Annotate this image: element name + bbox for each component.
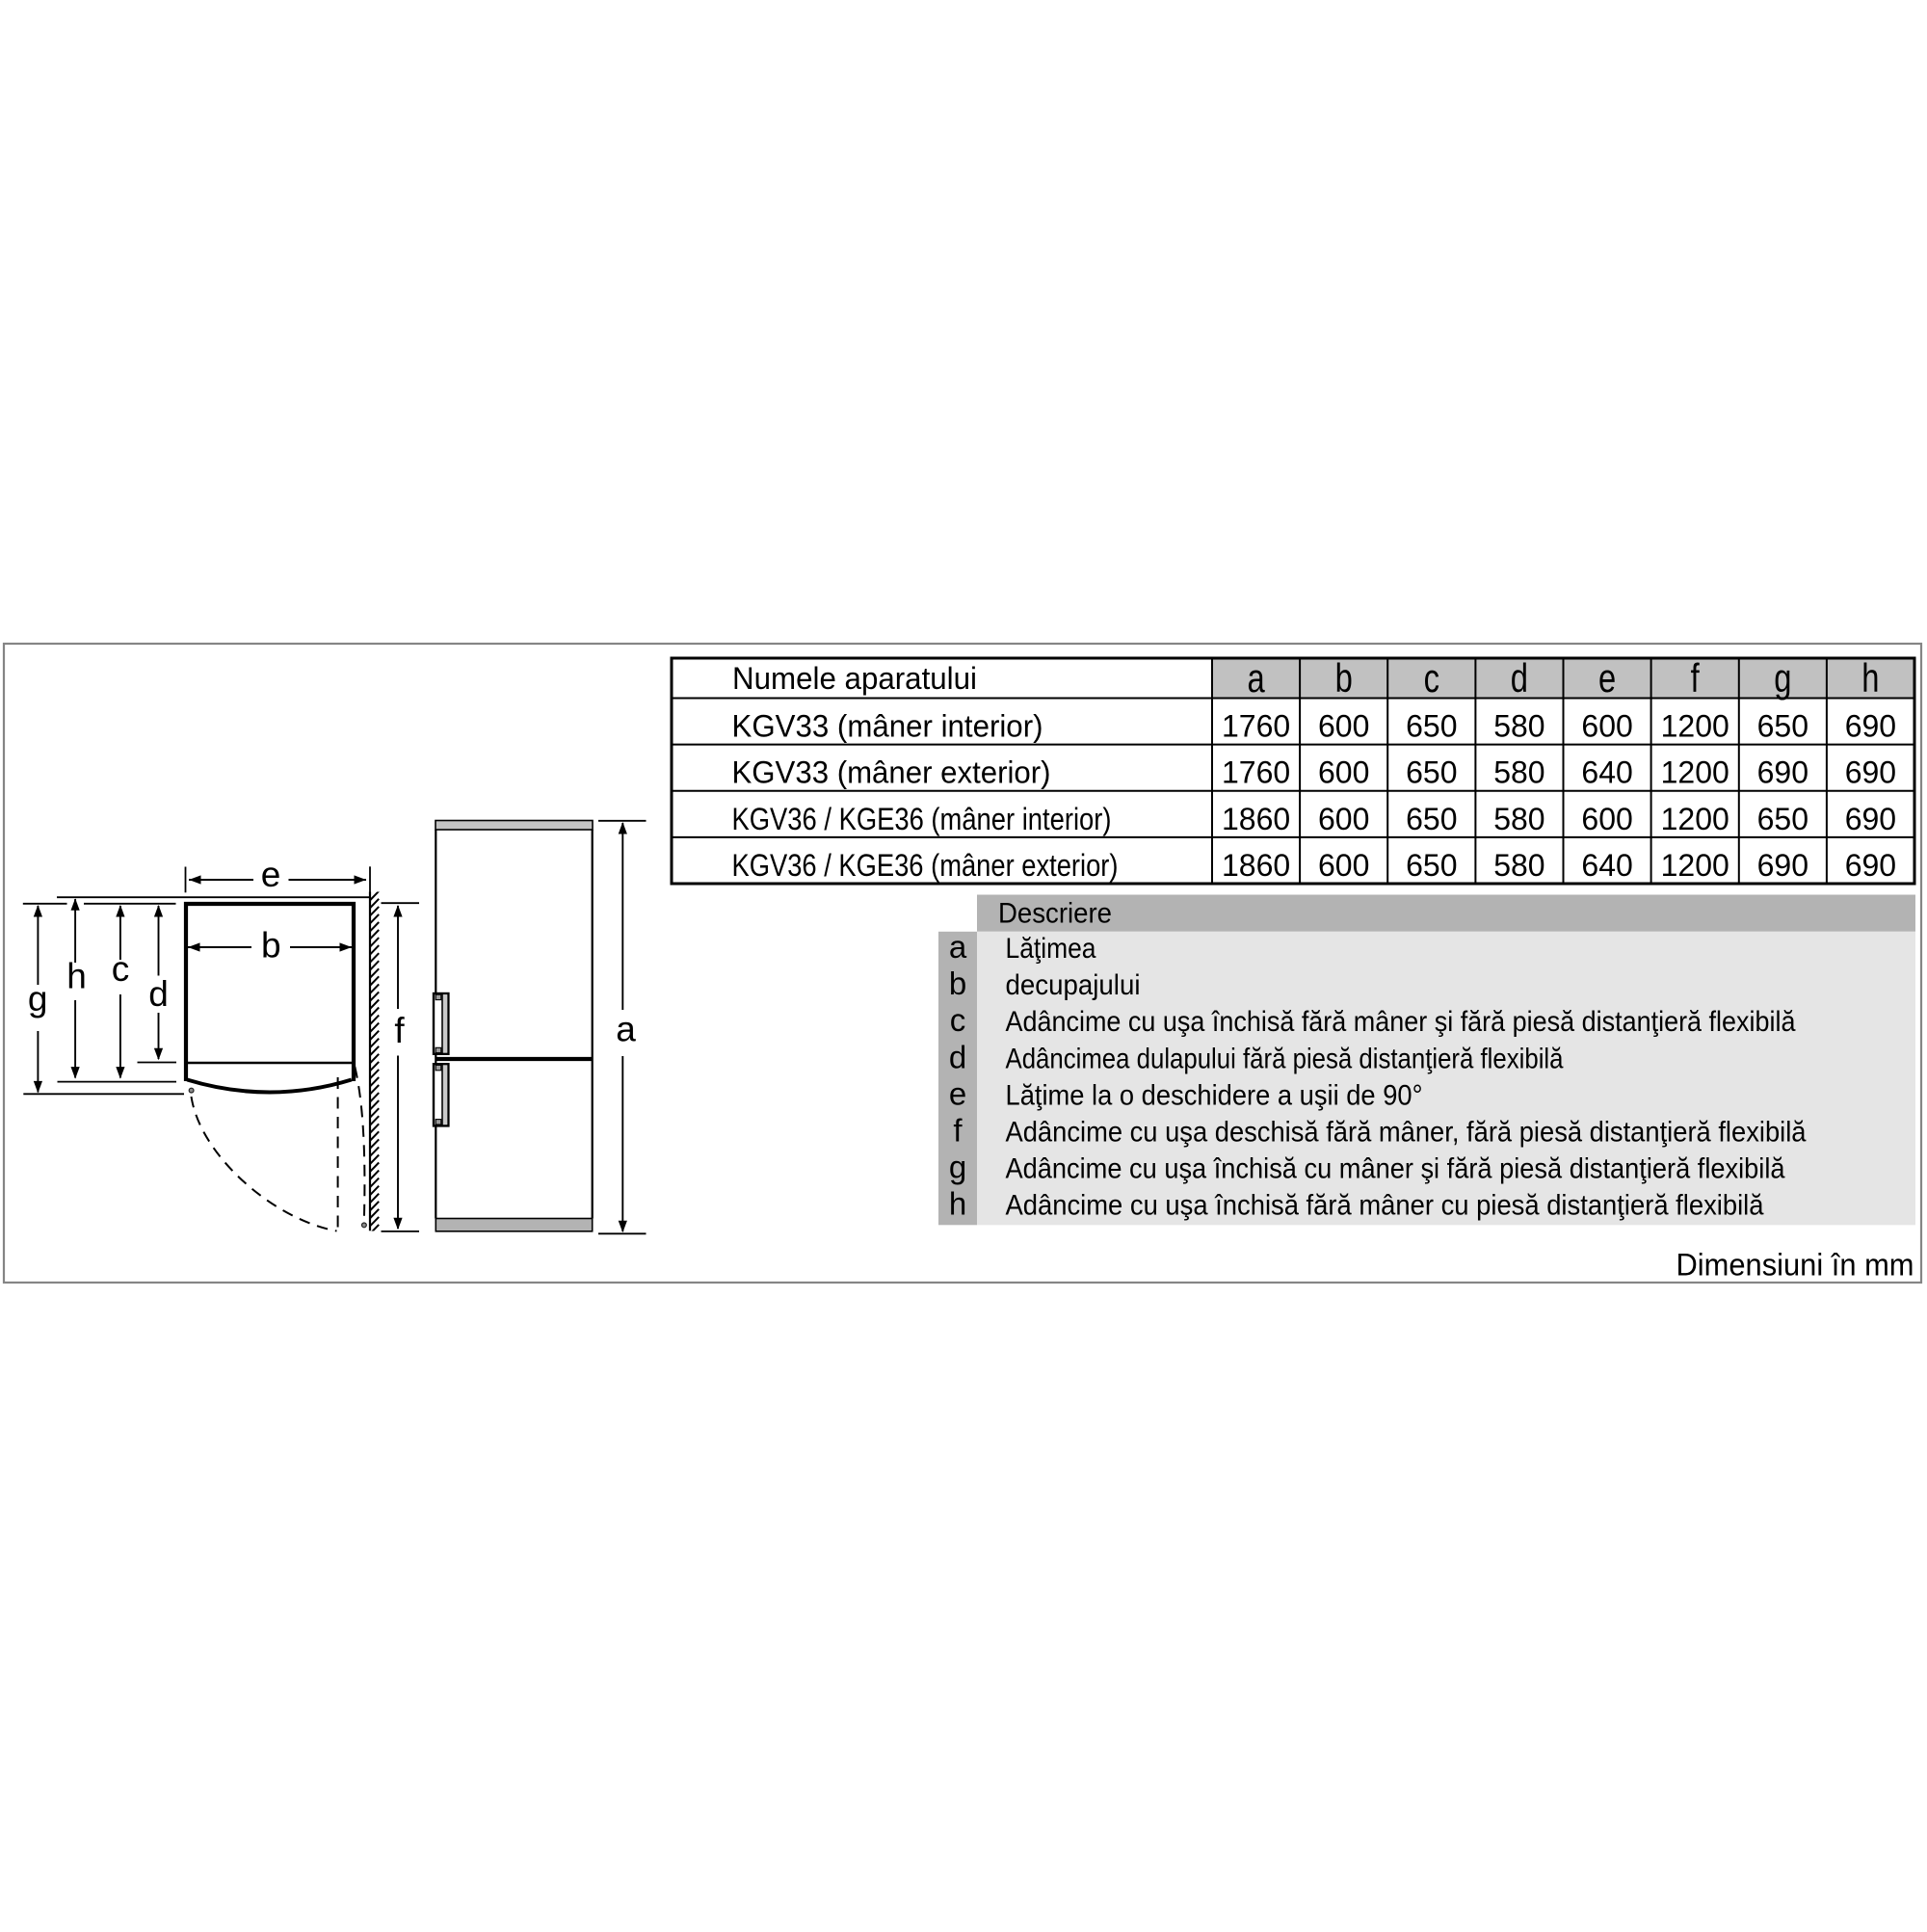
svg-text:600: 600 — [1581, 709, 1632, 744]
svg-text:e: e — [949, 1075, 966, 1111]
svg-text:1200: 1200 — [1661, 848, 1729, 883]
svg-text:d: d — [949, 1039, 966, 1074]
svg-text:1200: 1200 — [1661, 755, 1729, 790]
svg-text:g: g — [1774, 655, 1791, 701]
svg-text:1760: 1760 — [1222, 709, 1290, 744]
svg-text:600: 600 — [1581, 802, 1632, 836]
svg-text:g: g — [28, 979, 48, 1019]
svg-text:600: 600 — [1318, 848, 1369, 883]
svg-text:1860: 1860 — [1222, 802, 1290, 836]
svg-text:690: 690 — [1757, 755, 1808, 790]
svg-text:b: b — [1335, 655, 1353, 701]
svg-text:e: e — [261, 855, 281, 894]
svg-text:580: 580 — [1493, 802, 1544, 836]
svg-text:c: c — [950, 1002, 966, 1038]
svg-text:690: 690 — [1845, 802, 1896, 836]
svg-text:h: h — [66, 957, 87, 996]
svg-text:580: 580 — [1493, 709, 1544, 744]
svg-text:c: c — [112, 949, 130, 989]
svg-text:h: h — [1861, 655, 1879, 701]
svg-text:690: 690 — [1845, 848, 1896, 883]
svg-text:KGV36 / KGE36 (mâner interior): KGV36 / KGE36 (mâner interior) — [732, 802, 1112, 836]
svg-text:c: c — [1424, 655, 1439, 701]
svg-text:KGV33 (mâner interior): KGV33 (mâner interior) — [732, 709, 1043, 744]
svg-text:a: a — [949, 929, 967, 965]
svg-text:640: 640 — [1581, 848, 1632, 883]
svg-text:Adâncimea dulapului fără piesă: Adâncimea dulapului fără piesă distanţie… — [1006, 1043, 1564, 1074]
svg-text:h: h — [949, 1186, 966, 1222]
svg-text:KGV33 (mâner exterior): KGV33 (mâner exterior) — [732, 755, 1051, 790]
svg-text:Lăţime la o deschidere a uşii: Lăţime la o deschidere a uşii de 90° — [1006, 1079, 1423, 1111]
svg-text:1860: 1860 — [1222, 848, 1290, 883]
svg-text:Dimensiuni în mm: Dimensiuni în mm — [1676, 1248, 1914, 1283]
svg-text:d: d — [1511, 655, 1528, 701]
svg-text:640: 640 — [1581, 755, 1632, 790]
svg-text:690: 690 — [1845, 709, 1896, 744]
svg-text:Adâncime cu uşa închisă cu mân: Adâncime cu uşa închisă cu mâner şi fără… — [1006, 1153, 1785, 1185]
svg-text:580: 580 — [1493, 755, 1544, 790]
svg-text:Lăţimea: Lăţimea — [1006, 933, 1096, 965]
svg-text:600: 600 — [1318, 755, 1369, 790]
svg-text:f: f — [953, 1113, 963, 1149]
svg-text:650: 650 — [1406, 709, 1457, 744]
svg-text:g: g — [949, 1150, 966, 1185]
svg-text:a: a — [1247, 655, 1264, 701]
svg-text:650: 650 — [1757, 802, 1808, 836]
svg-text:1760: 1760 — [1222, 755, 1290, 790]
svg-text:Adâncime cu uşa deschisă fără: Adâncime cu uşa deschisă fără mâner, făr… — [1006, 1117, 1807, 1149]
svg-text:b: b — [949, 966, 966, 1001]
svg-text:b: b — [261, 925, 281, 965]
svg-text:KGV36 / KGE36 (mâner exterior): KGV36 / KGE36 (mâner exterior) — [732, 848, 1119, 883]
svg-text:650: 650 — [1757, 709, 1808, 744]
svg-text:Adâncime cu uşa închisă fără m: Adâncime cu uşa închisă fără mâner cu pi… — [1006, 1190, 1764, 1222]
svg-text:f: f — [394, 1011, 405, 1050]
svg-text:decupajului: decupajului — [1006, 969, 1141, 1001]
svg-text:e: e — [1598, 655, 1616, 701]
svg-text:600: 600 — [1318, 709, 1369, 744]
svg-text:1200: 1200 — [1661, 802, 1729, 836]
svg-text:690: 690 — [1757, 848, 1808, 883]
svg-text:600: 600 — [1318, 802, 1369, 836]
svg-text:d: d — [148, 974, 169, 1014]
svg-text:650: 650 — [1406, 802, 1457, 836]
svg-text:f: f — [1691, 655, 1701, 701]
svg-text:580: 580 — [1493, 848, 1544, 883]
svg-text:Adâncime cu uşa închisă fără m: Adâncime cu uşa închisă fără mâner şi fă… — [1006, 1006, 1796, 1038]
svg-text:Descriere: Descriere — [998, 898, 1112, 930]
svg-text:650: 650 — [1406, 755, 1457, 790]
svg-text:690: 690 — [1845, 755, 1896, 790]
svg-text:Numele aparatului: Numele aparatului — [732, 661, 977, 696]
svg-text:650: 650 — [1406, 848, 1457, 883]
svg-text:1200: 1200 — [1661, 709, 1729, 744]
svg-text:a: a — [616, 1010, 636, 1049]
